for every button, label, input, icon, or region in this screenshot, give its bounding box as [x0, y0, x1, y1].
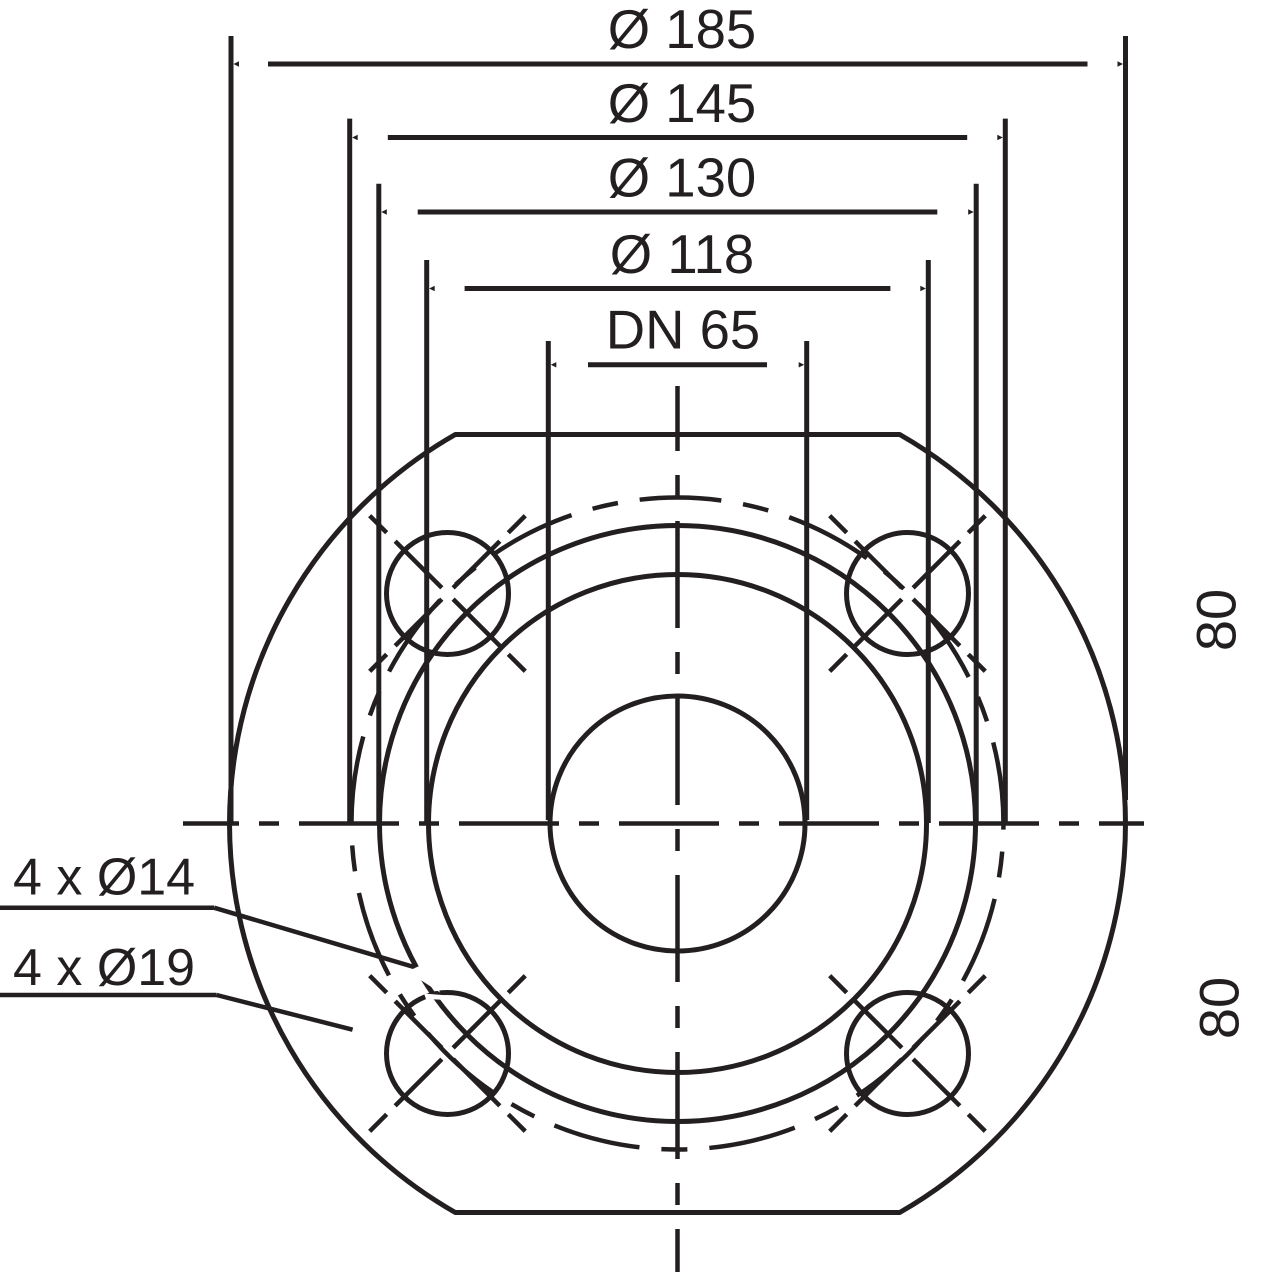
svg-text:4 x Ø19: 4 x Ø19	[13, 939, 195, 997]
svg-text:Ø 145: Ø 145	[608, 73, 756, 134]
svg-text:Ø 185: Ø 185	[608, 0, 756, 60]
svg-text:DN 65: DN 65	[606, 300, 760, 361]
svg-text:Ø 130: Ø 130	[608, 148, 756, 209]
svg-text:80: 80	[1187, 977, 1250, 1039]
svg-text:80: 80	[1184, 589, 1247, 651]
svg-text:4 x Ø14: 4 x Ø14	[13, 849, 195, 907]
svg-text:Ø 118: Ø 118	[610, 224, 754, 285]
